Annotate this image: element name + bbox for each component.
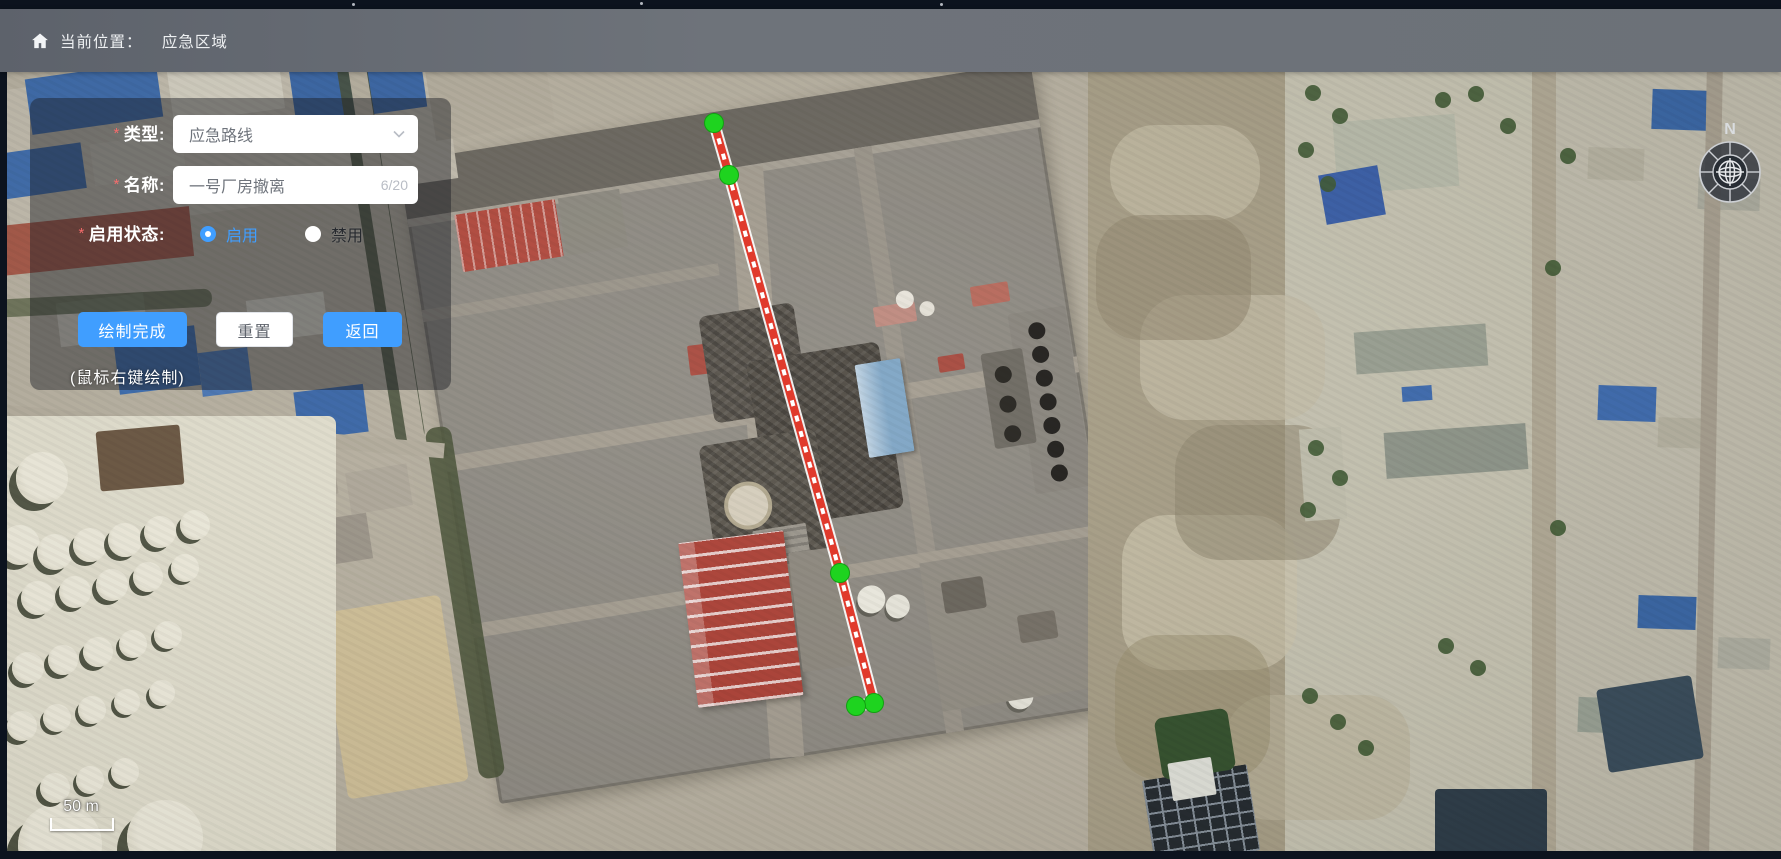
map-edge-bottom (0, 851, 1781, 859)
storage-tank (21, 581, 55, 615)
map-feature (1167, 757, 1216, 801)
map-feature (1550, 520, 1566, 536)
storage-tank (16, 452, 68, 504)
header-bar: 当前位置： 应急区域 (0, 9, 1781, 72)
required-mark: * (78, 225, 84, 242)
required-mark: * (113, 125, 119, 142)
map-feature (1545, 260, 1561, 276)
map-feature (1560, 148, 1576, 164)
storage-tank (37, 534, 73, 570)
map-feature (1302, 688, 1318, 704)
map-feature (1587, 147, 1644, 181)
map-feature (1110, 125, 1260, 220)
map-feature (1532, 60, 1556, 859)
storage-tank (78, 696, 106, 724)
map-feature (345, 463, 413, 514)
map-feature (1330, 714, 1346, 730)
map-feature (1300, 502, 1316, 518)
name-input[interactable] (173, 175, 377, 195)
home-icon[interactable] (30, 31, 50, 51)
storage-tank (180, 510, 210, 540)
radio-enabled-label: 启用 (226, 222, 258, 246)
map-edge-dot (640, 2, 643, 5)
map-feature (96, 424, 185, 491)
map-feature (1096, 215, 1251, 340)
back-button[interactable]: 返回 (323, 312, 402, 347)
compass-north-label: N (1724, 121, 1736, 138)
radio-disabled[interactable]: 禁用 (305, 222, 363, 246)
map-feature (1438, 638, 1454, 654)
storage-tank (144, 516, 176, 548)
type-select-value: 应急路线 (173, 122, 392, 146)
storage-tank (43, 704, 71, 732)
radio-dot-selected (200, 226, 216, 242)
storage-tank (7, 711, 37, 741)
storage-tank (83, 637, 113, 667)
map-feature (1332, 470, 1348, 486)
map-feature (1402, 385, 1433, 402)
map-edge-left (0, 9, 7, 859)
radio-enabled[interactable]: 启用 (200, 222, 258, 246)
char-counter: 6/20 (377, 177, 418, 193)
storage-tank (114, 689, 140, 715)
radio-group-status: 启用 禁用 (200, 224, 363, 244)
route-form-panel: *类型: 应急路线 *名称: 6/20 *启用状态: 启用 禁用 (30, 98, 451, 390)
chevron-down-icon (392, 127, 406, 141)
finish-drawing-button[interactable]: 绘制完成 (78, 312, 187, 347)
map-feature (937, 353, 965, 373)
map-feature (1470, 660, 1486, 676)
storage-tank (48, 645, 78, 675)
type-select[interactable]: 应急路线 (173, 115, 418, 153)
required-mark: * (113, 176, 119, 193)
map-feature (1435, 92, 1451, 108)
map-feature (422, 263, 720, 322)
map-feature (1468, 86, 1484, 102)
scale-bracket (50, 818, 114, 831)
map-feature (1318, 165, 1386, 225)
map-feature (1435, 789, 1547, 859)
map-feature (1596, 675, 1704, 773)
map-edge-dot (940, 3, 943, 6)
name-label: *名称: (30, 166, 165, 205)
name-field-box: 6/20 (173, 166, 418, 204)
storage-tank (108, 523, 142, 557)
storage-tank (119, 630, 147, 658)
storage-tank (76, 766, 104, 794)
storage-tank (73, 528, 107, 562)
reset-button[interactable]: 重置 (216, 312, 293, 347)
map-feature (558, 189, 628, 256)
map-feature (678, 530, 803, 708)
storage-tank (154, 621, 182, 649)
scale-label: 50 m (48, 798, 114, 816)
map-feature (918, 300, 935, 317)
map-feature (855, 583, 887, 615)
draw-hint: (鼠标右键绘制) (70, 364, 185, 388)
storage-tank (149, 680, 175, 706)
status-label: *启用状态: (30, 224, 165, 245)
map-feature (1298, 142, 1314, 158)
breadcrumb-prefix: 当前位置： (60, 34, 143, 51)
map-feature (970, 281, 1011, 307)
map-feature (1320, 176, 1336, 192)
map-feature (1308, 440, 1324, 456)
breadcrumb-location: 应急区域 (162, 34, 228, 51)
scale-bar: 50 m (48, 798, 114, 831)
map-feature (1500, 118, 1516, 134)
storage-tank (171, 554, 199, 582)
map-feature (1017, 610, 1059, 644)
app-window: N 50 m 当前位置： 应急区域 (0, 0, 1781, 859)
map-feature (1597, 385, 1656, 422)
storage-tank (12, 652, 44, 684)
map-feature (1332, 108, 1348, 124)
breadcrumb: 当前位置： 应急区域 (60, 30, 228, 52)
radio-disabled-label: 禁用 (331, 222, 363, 246)
storage-tank (96, 569, 128, 601)
map-feature (884, 593, 911, 620)
compass-control[interactable]: N (1689, 116, 1771, 208)
radio-dot-unselected (305, 226, 321, 242)
storage-tank (59, 576, 91, 608)
map-edge-dot (352, 3, 355, 6)
map-feature (941, 576, 987, 614)
industrial-site (398, 62, 1132, 804)
map-feature (1717, 637, 1770, 670)
map-edge-top (0, 0, 1781, 9)
storage-tank (133, 562, 163, 592)
map-feature (1305, 85, 1321, 101)
map-feature (1358, 740, 1374, 756)
storage-tank (111, 758, 139, 786)
map-feature (1637, 595, 1696, 630)
type-label: *类型: (30, 115, 165, 154)
